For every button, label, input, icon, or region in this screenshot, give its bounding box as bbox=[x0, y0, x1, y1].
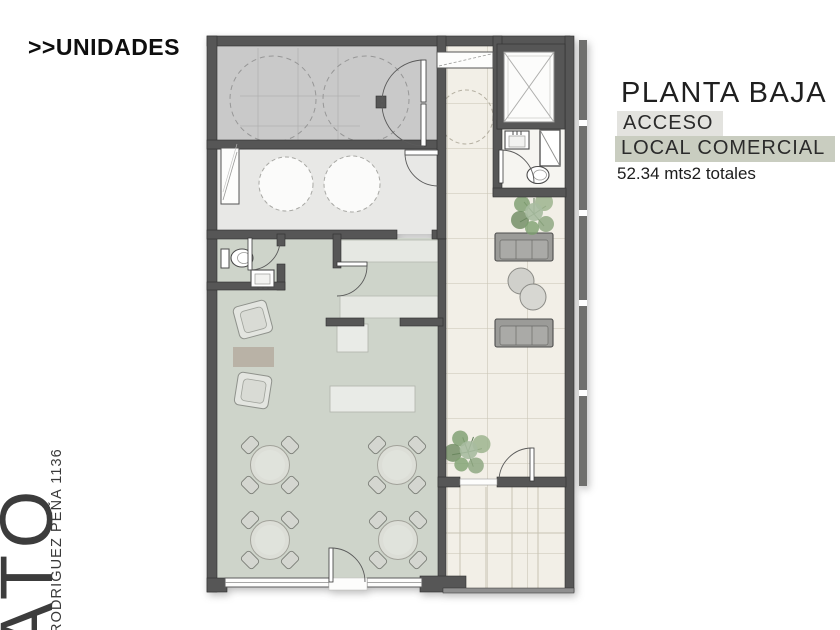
duct-shaft bbox=[540, 130, 560, 166]
armchair bbox=[234, 372, 273, 410]
garage-room bbox=[216, 44, 438, 146]
area-label: 52.34 mts2 totales bbox=[617, 164, 756, 184]
access-label: ACCESO bbox=[617, 111, 723, 137]
units-heading: >>UNIDADES bbox=[28, 34, 180, 61]
floor-plan bbox=[200, 30, 590, 605]
entrance-bottom-wall bbox=[443, 588, 574, 593]
sink bbox=[505, 131, 529, 149]
elevator bbox=[497, 44, 565, 129]
unit-label: LOCAL COMERCIAL bbox=[615, 136, 835, 162]
side-table bbox=[520, 284, 546, 310]
plan-title: PLANTA BAJA bbox=[621, 77, 827, 110]
sofa bbox=[495, 319, 553, 347]
window-slab bbox=[437, 52, 493, 68]
address-vertical-label: RODRIGUEZ PEÑA 1136 bbox=[50, 448, 65, 630]
rug bbox=[233, 347, 274, 367]
sofa bbox=[495, 233, 553, 261]
toilet bbox=[527, 167, 549, 184]
window bbox=[221, 144, 239, 204]
sink bbox=[251, 270, 274, 290]
page: >>UNIDADES PLANTA BAJA ACCESO LOCAL COME… bbox=[0, 0, 840, 630]
property-line-right bbox=[579, 40, 587, 486]
storefront-window bbox=[225, 578, 422, 587]
